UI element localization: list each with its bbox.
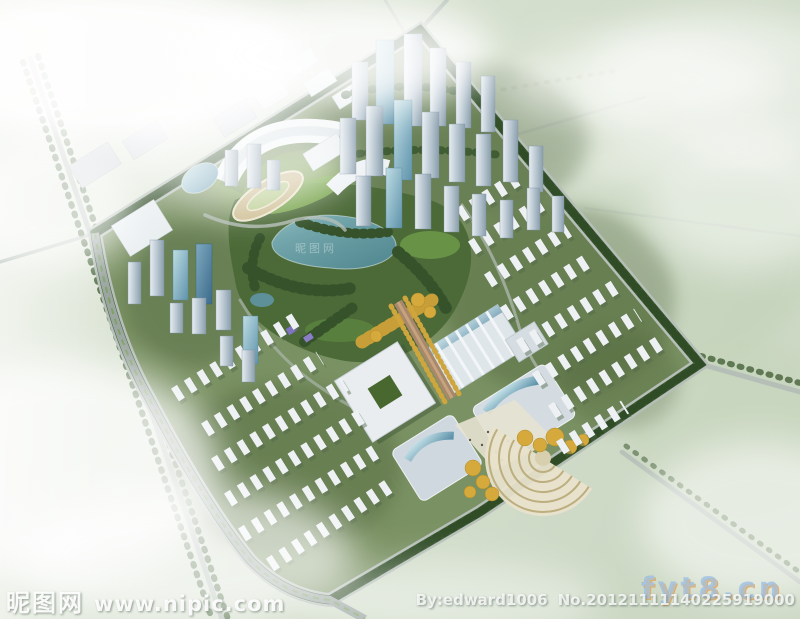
person-dot	[469, 439, 471, 441]
tower	[216, 290, 231, 330]
tower	[449, 124, 465, 182]
tower	[481, 76, 495, 132]
aerial-rendering-image: 昵图网 昵图网www.nipic.com fyt8.cn By:edward10…	[0, 0, 800, 619]
tower	[150, 240, 164, 296]
tower	[356, 176, 371, 226]
person-dot	[487, 431, 489, 433]
golden-tree	[464, 486, 476, 498]
cloud	[195, 0, 495, 110]
masterplan-scene	[0, 0, 800, 619]
person-dot	[481, 444, 483, 446]
dark-glass-tower	[196, 244, 212, 304]
tower	[500, 200, 513, 238]
cloud	[115, 100, 355, 210]
golden-tree	[370, 330, 382, 342]
glass-tower	[173, 250, 188, 300]
golden-tree	[533, 438, 547, 452]
tower	[242, 350, 255, 382]
tower	[366, 106, 383, 176]
tower	[192, 298, 206, 334]
tower	[415, 174, 431, 229]
tower	[472, 194, 486, 236]
tower	[529, 146, 543, 192]
golden-tree	[476, 475, 490, 489]
tower	[503, 120, 518, 182]
tower	[527, 188, 540, 230]
tower	[128, 262, 141, 304]
pond	[250, 293, 274, 307]
tower	[170, 303, 183, 333]
cloud	[575, 143, 665, 187]
glass-tower	[386, 168, 402, 228]
golden-tree	[465, 460, 481, 476]
tower	[422, 112, 439, 178]
tower	[552, 196, 564, 232]
golden-tree	[485, 487, 499, 501]
tower	[476, 134, 491, 186]
golden-tree	[411, 293, 425, 307]
tower	[444, 186, 459, 232]
golden-tree	[424, 306, 436, 318]
tower	[220, 336, 233, 366]
golden-tree	[517, 430, 533, 446]
